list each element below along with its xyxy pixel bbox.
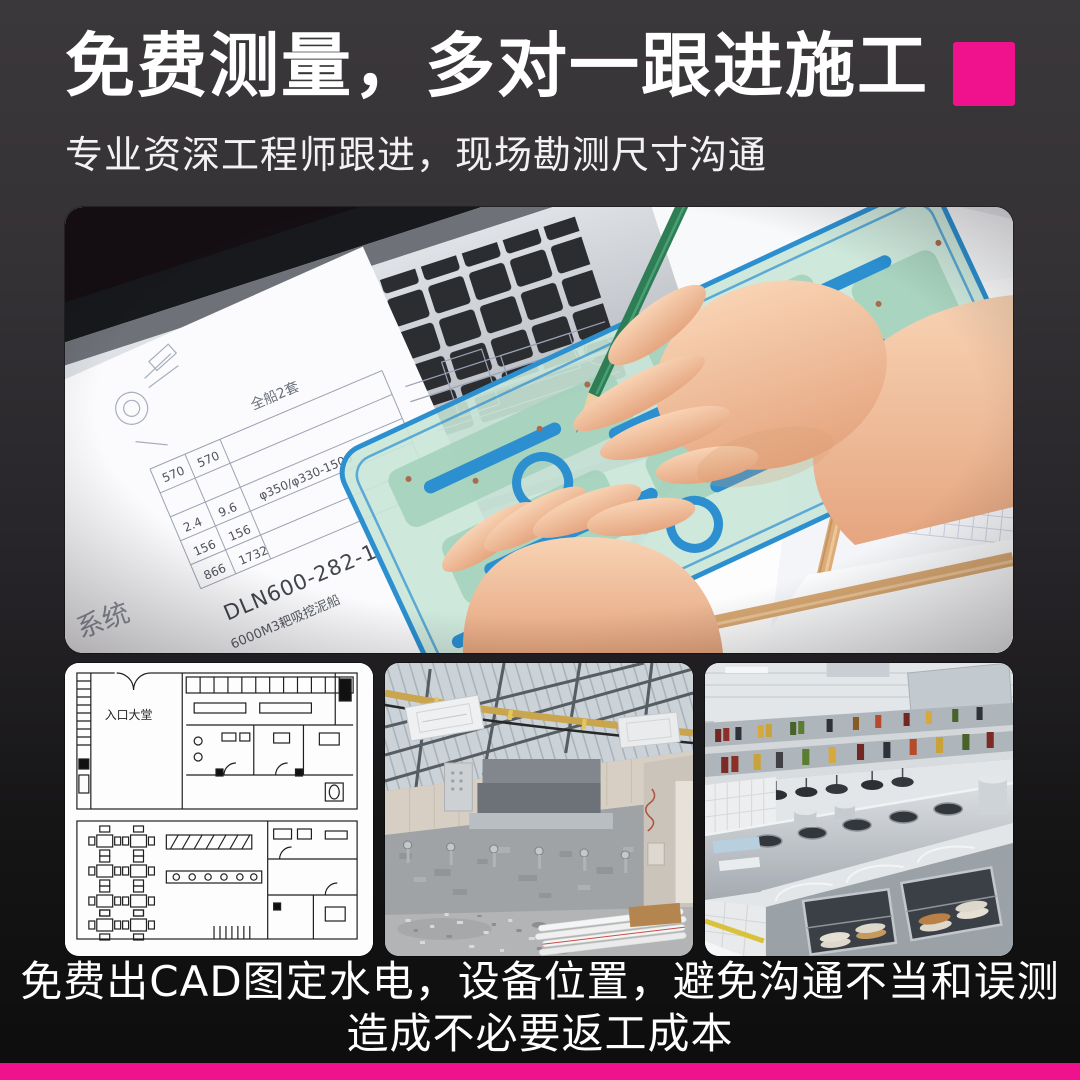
- serving-counter: [445, 759, 613, 829]
- accent-square: [953, 42, 1015, 106]
- finished-kitchen-illustration: [705, 663, 1013, 956]
- hero-photo-illustration: 全船2套 570 570 2.4 9.6 φ350/φ330-1500 156 …: [65, 207, 1013, 653]
- kitchen-floor: [705, 900, 766, 956]
- hero-photo: 全船2套 570 570 2.4 9.6 φ350/φ330-1500 156 …: [65, 207, 1013, 653]
- promo-page: 免费测量，多对一跟进施工 专业资深工程师跟进，现场勘测尺寸沟通: [0, 0, 1080, 1080]
- construction-site-illustration: [385, 663, 693, 956]
- lobby-label: 入口大堂: [105, 708, 153, 722]
- gallery-row: 入口大堂: [65, 663, 1013, 956]
- caption-line-1: 免费出CAD图定水电，设备位置，避免沟通不当和误测: [0, 956, 1080, 1008]
- doorway: [676, 781, 693, 903]
- caption-line-2: 造成不必要返工成本: [0, 1008, 1080, 1060]
- footer-caption: 免费出CAD图定水电，设备位置，避免沟通不当和误测 造成不必要返工成本: [0, 956, 1080, 1060]
- photo-vignette: [65, 207, 1013, 653]
- header: 免费测量，多对一跟进施工 专业资深工程师跟进，现场勘测尺寸沟通: [65, 28, 1015, 179]
- electrical-box: [648, 843, 664, 865]
- gallery-item-finished-kitchen: [705, 663, 1013, 956]
- title-row: 免费测量，多对一跟进施工: [65, 28, 1015, 106]
- cad-floor-plan-illustration: 入口大堂: [65, 663, 373, 956]
- gallery-item-construction-site: [385, 663, 693, 956]
- page-title: 免费测量，多对一跟进施工: [65, 28, 929, 105]
- page-subtitle: 专业资深工程师跟进，现场勘测尺寸沟通: [65, 124, 1015, 179]
- accent-bottom-bar: [0, 1063, 1080, 1080]
- gallery-item-cad-plan: 入口大堂: [65, 663, 373, 956]
